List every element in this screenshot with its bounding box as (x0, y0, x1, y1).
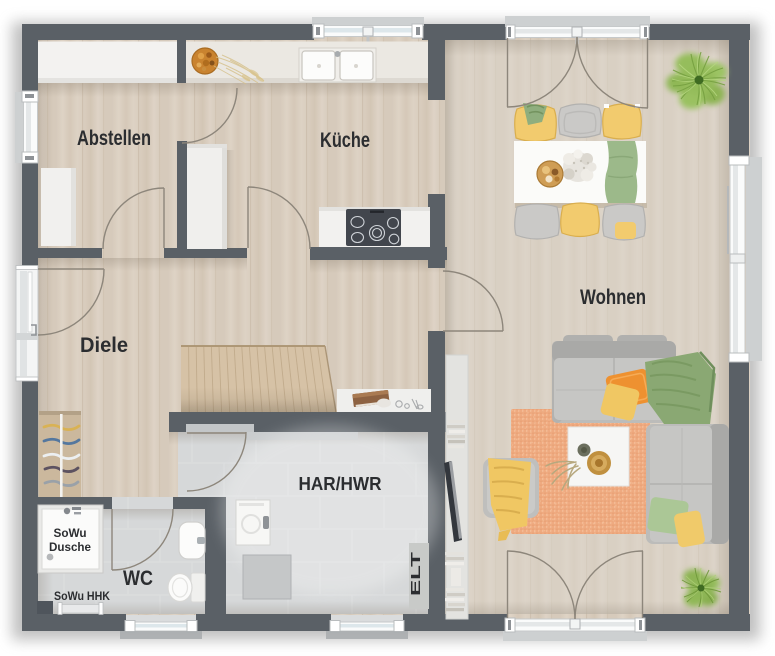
svg-text:SoWu HHK: SoWu HHK (54, 589, 110, 603)
svg-text:HAR/HWR: HAR/HWR (299, 474, 382, 494)
svg-text:Diele: Diele (80, 334, 128, 357)
svg-text:WC: WC (123, 567, 153, 590)
svg-text:Dusche: Dusche (49, 542, 91, 554)
svg-text:SoWu: SoWu (54, 528, 87, 540)
svg-text:Wohnen: Wohnen (580, 286, 646, 309)
svg-text:ELT: ELT (409, 551, 423, 596)
svg-text:Abstellen: Abstellen (77, 127, 151, 150)
svg-text:Küche: Küche (320, 129, 370, 152)
